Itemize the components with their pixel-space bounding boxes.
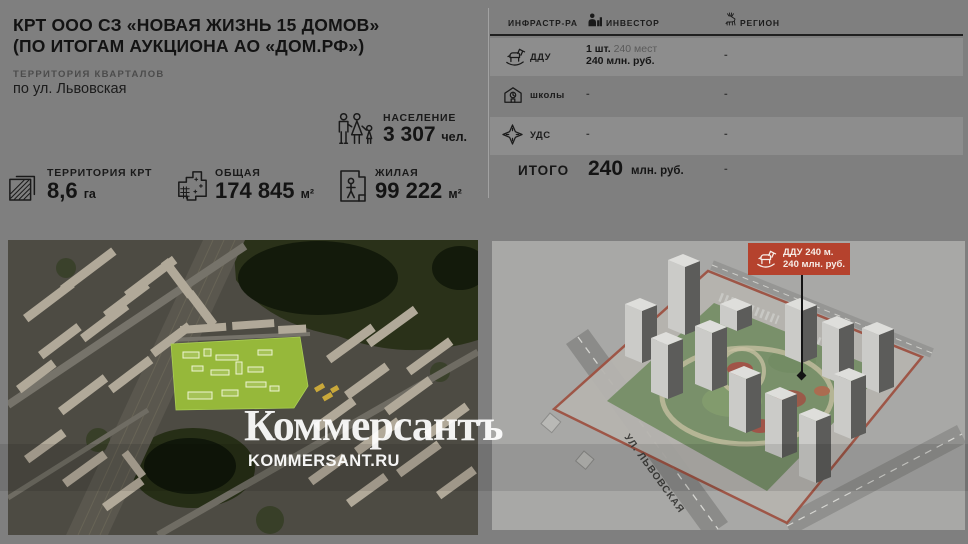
total-value: 240 (588, 157, 623, 181)
total-area-unit: м² (301, 187, 314, 201)
population-unit: чел. (441, 130, 467, 144)
living-area-unit: м² (448, 187, 461, 201)
total-label: ИТОГО (518, 163, 569, 178)
title-line-1: КРТ ООО СЗ «НОВАЯ ЖИЗНЬ 15 ДОМОВ» (13, 15, 379, 36)
callout-line1: ДДУ 240 м. (783, 247, 845, 259)
total-area-value: 174 845 (215, 178, 295, 203)
schools-investor: - (586, 88, 590, 100)
callout-line2: 240 млн. руб. (783, 259, 845, 271)
total-unit: млн. руб. (631, 165, 684, 177)
ddu-capacity: 240 мест (614, 43, 658, 55)
col-investor: ИНВЕСТОР (606, 18, 660, 28)
infrastructure-table: ИНФРАСТР-РА ИНВЕСТОР РЕГИОН ДДУ 1 шт. 24… (490, 0, 964, 200)
living-area-value: 99 222 (375, 178, 442, 203)
uds-region: - (724, 128, 728, 140)
uds-investor: - (586, 128, 590, 140)
title-line-2: (ПО ИТОГАМ АУКЦИОНА АО «ДОМ.РФ») (13, 36, 379, 57)
stat-total-area: ОБЩАЯ 174 845 м² (176, 167, 314, 203)
table-header-line (490, 34, 963, 36)
investor-icon (587, 12, 602, 27)
territory-unit: га (84, 187, 96, 201)
stat-territory: ТЕРРИТОРИЯ КРТ 8,6 га (8, 167, 152, 203)
row-label-ddu: ДДУ (530, 52, 551, 63)
col-infrastructure: ИНФРАСТР-РА (508, 18, 578, 28)
ddu-investor-line1: 1 шт. 240 мест (586, 43, 657, 55)
total-region: - (724, 163, 728, 175)
row-label-uds: УДС (530, 130, 551, 141)
stat-living-area: ЖИЛАЯ 99 222 м² (338, 167, 462, 203)
column-divider (488, 8, 489, 198)
page-title: КРТ ООО СЗ «НОВАЯ ЖИЗНЬ 15 ДОМОВ» (ПО ИТ… (13, 15, 379, 57)
subtitle-street: по ул. Львовская (13, 81, 126, 97)
rocking-horse-icon (504, 47, 526, 67)
col-region: РЕГИОН (740, 18, 780, 28)
ddu-qty: 1 шт. (586, 43, 611, 55)
stat-population: НАСЕЛЕНИЕ 3 307 чел. (334, 112, 467, 148)
row-label-schools: школы (530, 90, 565, 101)
road-junction-icon (502, 124, 523, 145)
territory-icon (8, 167, 40, 203)
kommersant-site-url: KOMMERSANT.RU (248, 452, 400, 471)
floorplan-icon (176, 167, 208, 203)
ddu-region: - (724, 49, 728, 61)
school-icon (503, 86, 523, 104)
masterplan-render: УЛ. ЛЬВОВСКАЯ ДДУ 240 м. 240 млн. руб. (492, 241, 965, 530)
callout-leader-line (801, 275, 803, 375)
ddu-callout: ДДУ 240 м. 240 млн. руб. (748, 243, 850, 275)
population-value: 3 307 (383, 123, 436, 146)
satellite-map (8, 240, 478, 535)
subtitle-label: ТЕРРИТОРИЯ КВАРТАЛОВ (13, 69, 165, 80)
resident-icon (338, 167, 368, 203)
ddu-cost: 240 млн. руб. (586, 55, 655, 67)
satellite-map-image (8, 240, 478, 535)
deer-icon (723, 12, 738, 26)
rocking-horse-icon (755, 249, 777, 269)
schools-region: - (724, 88, 728, 100)
territory-value: 8,6 (47, 178, 78, 203)
family-icon (334, 112, 376, 148)
kommersant-logo: Коммерсантъ (244, 400, 503, 451)
masterplan-image: УЛ. ЛЬВОВСКАЯ (492, 241, 965, 530)
